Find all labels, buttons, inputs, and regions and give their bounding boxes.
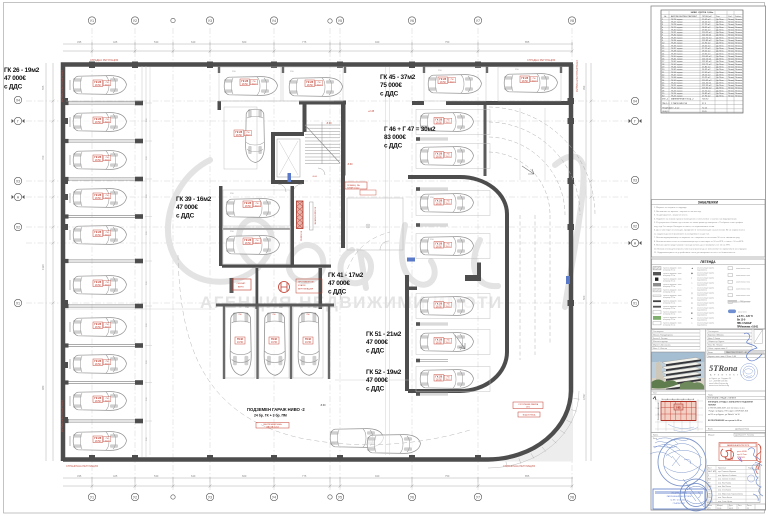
svg-text:ГК 26 - 19м2: ГК 26 - 19м2 [4, 67, 40, 74]
svg-text:Г 46 + Г 47 = 30м2: Г 46 + Г 47 = 30м2 [384, 126, 436, 133]
svg-text:2. Височините на вратите - ме: 2. Височините на вратите - мерени от чис… [654, 211, 702, 213]
svg-text:арх. В. Пеев: арх. В. Пеев [737, 454, 747, 456]
svg-text:ПРИемлива +18-81: ПРИемлива +18-81 [737, 327, 759, 329]
svg-text:под мазилка: под мазилка [697, 324, 707, 326]
svg-text:▲: ▲ [691, 267, 694, 270]
svg-text:ВОДООТВОД: ВОДООТВОД [523, 415, 536, 417]
svg-text:ПВЦ дограма: ПВЦ дограма [740, 301, 751, 303]
svg-text:3,597: 3,597 [582, 393, 586, 400]
svg-text:Петев: Петев [728, 96, 735, 98]
svg-text:ЕЛ.ТАБЛА: ЕЛ.ТАБЛА [300, 231, 303, 241]
svg-text:Лист: Лист [738, 505, 742, 507]
svg-text:Лист: Лист [653, 393, 657, 395]
svg-text:Х3: Х3 [16, 179, 20, 183]
svg-text:21: 21 [747, 508, 749, 510]
svg-text:арх. Пламена Маркова: арх. Пламена Маркова [718, 471, 736, 473]
svg-text:У8: У8 [570, 495, 574, 499]
svg-text:8. Всички външни стени на топ: 8. Всички външни стени на топлоизолация … [654, 241, 744, 243]
svg-text:РАБОТЕН ПРОЕКТ - АС: РАБОТЕН ПРОЕКТ - АС [726, 351, 748, 354]
svg-text:Петева: Петева [735, 96, 743, 98]
svg-text:СТРАНИЧНА РЕГУЛАЦИЯ: СТРАНИЧНА РЕГУЛАЦИЯ [575, 60, 579, 92]
svg-text:Чертеж: план ниво -2 Кота -5,: Чертеж: план ниво -2 Кота -5,60 [708, 356, 736, 358]
svg-text:17.92 м2: 17.92 м2 [702, 96, 711, 98]
svg-text:660: 660 [242, 40, 247, 44]
svg-text:осветително тяло: осветително тяло [736, 275, 750, 277]
svg-text:980: 980 [41, 385, 45, 390]
svg-text:Листа: Листа [747, 505, 752, 507]
svg-text:Обект: гаражи ниво -2: Обект: гаражи ниво -2 [708, 348, 727, 350]
svg-text:47 000€: 47 000€ [328, 280, 350, 287]
svg-text:Съгласувал: Съгласувал [653, 331, 663, 333]
svg-text:АВТОМОБИЛЕН ПАРКИНГ: АВТОМОБИЛЕН ПАРКИНГ [671, 15, 698, 18]
svg-text:ПОМЕЩ. ЗА: ПОМЕЩ. ЗА [347, 184, 360, 187]
svg-text:Възл.: Възл. [708, 428, 713, 430]
svg-text:ПУСО: ПУСО [708, 501, 713, 503]
svg-text:СТРАНИЧНА РЕГУЛАЦИЯ: СТРАНИЧНА РЕГУЛАЦИЯ [503, 464, 535, 468]
svg-text:интериор 25 см: интериор 25 см [663, 324, 676, 326]
svg-text:47 000€: 47 000€ [366, 377, 388, 384]
svg-text:Иван С. Иванов: Иван С. Иванов [653, 348, 667, 350]
svg-text:16.50: 16.50 [237, 341, 244, 344]
svg-text:16.50: 16.50 [271, 341, 278, 344]
svg-text:А Р Х И Т Е К Т С: А Р Х И Т Е К Т С [710, 374, 743, 377]
svg-text:интериор 25 см: интериор 25 см [663, 269, 676, 271]
svg-text:Инж.конструктор: Инж.конструктор [653, 341, 668, 343]
svg-text:ГК-55 гараж: ГК-55 гараж [671, 96, 683, 98]
svg-text:7. Всички водоприемници на па: 7. Всички водоприемници на паркинга са с… [654, 237, 741, 239]
svg-text:Иван Г. Колев: Иван Г. Колев [708, 338, 720, 340]
svg-text:У2: У2 [133, 495, 137, 499]
svg-text:У4: У4 [272, 495, 276, 499]
svg-text:ГАРАЖИ: ГАРАЖИ [708, 404, 716, 407]
svg-text:Зап.: Зап. [716, 16, 721, 18]
svg-text:Вп 15-0: Вп 15-0 [737, 320, 746, 322]
svg-text:940: 940 [375, 474, 380, 478]
svg-text:под мазилка: под мазилка [697, 289, 707, 291]
svg-text:М.Е.-2: М.Е.-2 [662, 99, 669, 101]
svg-text:осветително тяло: осветително тяло [736, 295, 750, 297]
svg-text:У7: У7 [476, 495, 480, 499]
svg-text:инж. Яна Рачева: инж. Яна Рачева [718, 482, 731, 484]
svg-text:72.15: 72.15 [702, 108, 708, 110]
svg-text:с ДДС: с ДДС [4, 83, 23, 90]
svg-text:ВЕНТ.: ВЕНТ. [238, 287, 245, 289]
svg-text:1320: 1320 [41, 264, 45, 270]
svg-text:Инж. Ив. Петров: Инж. Ив. Петров [708, 345, 722, 347]
svg-text:Мащаб: Мащаб [717, 505, 723, 507]
svg-text:04.21: 04.21 [729, 508, 733, 510]
svg-text:КАМАРА НА АРХИТЕКТИТЕ: КАМАРА НА АРХИТЕКТИТЕ [727, 444, 750, 447]
svg-text:Дата: Дата [729, 505, 733, 507]
svg-text:ЕЛ.ТАБЛО МИЕНЕ: ЕЛ.ТАБЛО МИЕНЕ [314, 207, 317, 225]
svg-text:У6: У6 [410, 19, 414, 23]
svg-text:1:100: 1:100 [717, 508, 721, 510]
svg-text:У4: У4 [272, 19, 276, 23]
svg-text:Г: Г [17, 119, 19, 123]
svg-text:750: 750 [445, 474, 450, 478]
svg-text:ПМ-1÷3: ПМ-1÷3 [662, 102, 670, 105]
svg-text:83 000€: 83 000€ [384, 134, 406, 141]
svg-text:СТРАНИЧНА РЕГУЛАЦИЯ: СТРАНИЧНА РЕГУЛАЦИЯ [66, 464, 98, 468]
svg-text:интериор 25 см: интериор 25 см [663, 308, 676, 310]
svg-text:Соб.: Соб. [728, 16, 733, 18]
svg-text:530: 530 [154, 40, 159, 44]
svg-text:Кольо К. Пенчев: Кольо К. Пенчев [653, 338, 667, 340]
svg-text:У3: У3 [208, 19, 212, 23]
svg-text:ОВК: ОВК [708, 486, 711, 488]
svg-text:интериор 25 см: интериор 25 см [663, 291, 676, 293]
svg-text:под, над 2-та метра Фасадите и: под, над 2-та метра Фасадите и навън, на… [654, 225, 715, 228]
svg-text:Г: Г [634, 119, 636, 123]
svg-text:У3: У3 [208, 495, 212, 499]
svg-text:www.strona-architects.bg: www.strona-architects.bg [709, 384, 729, 387]
svg-text:ГК 45 - 37м2: ГК 45 - 37м2 [380, 74, 416, 81]
svg-text:"Лазур", гр.Бургас, ПИ с идент: "Лазур", гр.Бургас, ПИ с идент. 07079.60… [708, 411, 748, 413]
svg-text:335: 335 [77, 474, 82, 478]
svg-text:Х2: Х2 [16, 225, 20, 229]
svg-text:7: 7 [738, 508, 739, 510]
svg-text:ЛЕГЕНДА: ЛЕГЕНДА [700, 260, 716, 264]
svg-text:24 бр. ГК + 3 бр. ПМ: 24 бр. ГК + 3 бр. ПМ [254, 414, 287, 418]
svg-text:ЕЛ: ЕЛ [708, 482, 710, 484]
svg-text:-5.60: -5.60 [320, 404, 326, 407]
svg-text:775: 775 [302, 40, 307, 44]
svg-text:ПРОТИВОПОЖ.: ПРОТИВОПОЖ. [298, 282, 315, 284]
svg-text:ЖИЛИЩНА СГРАДА С МАГАЗИНИ И ПО: ЖИЛИЩНА СГРАДА С МАГАЗИНИ И ПОДЗЕМНИ [708, 400, 754, 403]
svg-text:ОБЩО: ОБЩО [662, 111, 669, 113]
svg-text:СГРАДНА РЕГУЛАЦИЯ: СГРАДНА РЕГУЛАЦИЯ [527, 58, 555, 62]
svg-text:инж. Цветана Стойкова: инж. Цветана Стойкова [718, 474, 736, 477]
svg-text:Дв.Петк.: Дв.Петк. [716, 96, 725, 98]
svg-text:под мазилка: под мазилка [697, 319, 707, 321]
svg-text:Кирилов / Михова: Кирилов / Михова [708, 334, 725, 336]
svg-text:интериор 25 см: интериор 25 см [663, 302, 676, 304]
svg-text:Част: Част [708, 467, 712, 469]
svg-text:75 000€: 75 000€ [380, 82, 402, 89]
svg-text:НИВО -2 КОТА -5,60м: НИВО -2 КОТА -5,60м [691, 11, 714, 14]
svg-text:425: 425 [113, 474, 118, 478]
svg-text:2 ПАРКОМЕСТА: 2 ПАРКОМЕСТА [671, 102, 688, 105]
svg-text:под мазилка: под мазилка [697, 269, 707, 271]
svg-text:660: 660 [242, 474, 247, 478]
svg-text:с ДДС: с ДДС [366, 347, 385, 354]
svg-text:Х1: Х1 [16, 301, 20, 305]
svg-text:⌀ 0.70 – 120 °С: ⌀ 0.70 – 120 °С [737, 315, 753, 318]
svg-text:СТРАНИЧНА РЕГУЛАЦИЯ: СТРАНИЧНА РЕГУЛАЦИЯ [60, 400, 64, 432]
svg-text:осветително тяло: осветително тяло [736, 282, 750, 284]
svg-text:РАЗРЕШЕНИЕ ЗА СТРОЕЖ: РАЗРЕШЕНИЕ ЗА СТРОЕЖ [667, 495, 692, 498]
svg-text:осветително тяло: осветително тяло [736, 288, 750, 290]
svg-text:под мазилка: под мазилка [697, 274, 707, 276]
svg-text:с ДДС: с ДДС [380, 90, 399, 97]
svg-text:МАНЕВРЕНА ПЛОЩ -2: МАНЕВРЕНА ПЛОЩ -2 [671, 98, 694, 101]
svg-text:интериор 25 см: интериор 25 см [663, 319, 676, 321]
svg-text:ШАХТА 3.2м2: ШАХТА 3.2м2 [266, 426, 280, 429]
svg-text:-5.60: -5.60 [326, 122, 332, 125]
svg-text:СТРАНИЧНА РЕГУЛАЦИЯ: СТРАНИЧНА РЕГУЛАЦИЯ [60, 70, 64, 102]
svg-text:4. Подовете на всички гаражни: 4. Подовете на всички гаражни помещения … [654, 218, 737, 220]
svg-text:Х4: Х4 [16, 98, 20, 102]
svg-text:канал вент.: канал вент. [738, 312, 747, 314]
svg-text:У7: У7 [476, 19, 480, 23]
svg-text:У8: У8 [570, 19, 574, 23]
svg-text:ВиК: ВиК [708, 479, 711, 481]
svg-text:ГК 51 - 21м2: ГК 51 - 21м2 [366, 331, 402, 338]
svg-text:Мащаб: Мащаб [708, 435, 714, 437]
svg-text:Х1: Х1 [633, 301, 637, 305]
svg-text:393: 393 [582, 85, 586, 90]
svg-text:ЧАСТ АРХ: ЧАСТ АРХ [708, 470, 717, 473]
svg-text:47 000€: 47 000€ [176, 204, 198, 211]
svg-text:Съгласувал: Съгласувал [708, 331, 718, 333]
svg-text:3. За довършител - мерки от м: 3. За довършител - мерки от място. [654, 215, 688, 217]
svg-text:ПБЗ: ПБЗ [708, 497, 711, 499]
svg-text:1. Мерките на открито се подр: 1. Мерките на открито се подреди. [654, 207, 687, 209]
svg-text:855: 855 [525, 474, 530, 478]
svg-text:У2: У2 [133, 19, 137, 23]
svg-text:ОТОПЛЕНИЕ РАМПА: ОТОПЛЕНИЕ РАМПА [518, 403, 539, 406]
svg-text:940: 940 [375, 40, 380, 44]
svg-text:9. Всички скрити греди / рамк: 9. Всички скрити греди / рамки / носещи … [654, 245, 731, 247]
svg-text:Проектант: Проектант [718, 467, 726, 469]
svg-text:335: 335 [77, 40, 82, 44]
svg-text:-5.60: -5.60 [312, 176, 318, 178]
svg-text:530: 530 [154, 474, 159, 478]
svg-text:арх.Васил Пеев: арх.Васил Пеев [735, 428, 749, 430]
svg-text:интериор 25 см: интериор 25 см [663, 275, 676, 277]
svg-text:инж. Петко Бонев: инж. Петко Бонев [718, 497, 732, 499]
svg-text:К: К [708, 475, 709, 477]
svg-text:ГУМИ 6.5м2: ГУМИ 6.5м2 [347, 188, 360, 190]
svg-text:СМУКАТ.: СМУКАТ. [236, 282, 245, 285]
svg-text:640: 640 [191, 474, 196, 478]
svg-text:855: 855 [525, 40, 530, 44]
svg-text:У5: У5 [338, 19, 342, 23]
svg-text:СГРАДНА РЕГУЛАЦИЯ: СГРАДНА РЕГУЛАЦИЯ [90, 58, 118, 62]
svg-text:ВХ.РАЗРЕШЕНИЕ за строеж № 89 о: ВХ.РАЗРЕШЕНИЕ за строеж № 89 от [708, 419, 742, 422]
svg-text:↕: ↕ [691, 277, 692, 280]
svg-text:ПОДЗЕМЕН ГАРАЖ НИВО -2: ПОДЗЕМЕН ГАРАЖ НИВО -2 [247, 407, 305, 412]
svg-text:интериор 25 см: интериор 25 см [663, 280, 676, 282]
svg-text:500: 500 [582, 295, 586, 300]
svg-text:640: 640 [191, 40, 196, 44]
svg-text:+2.45: +2.45 [368, 110, 375, 113]
svg-text:Х3: Х3 [633, 178, 637, 182]
svg-text:11. Хидроизолацията на устройс: 11. Хидроизолацията на устройството стан… [654, 251, 736, 254]
svg-text:Фаза: Фаза [708, 504, 712, 507]
svg-text:-5.60: -5.60 [347, 163, 353, 166]
svg-text:5ТRona: 5ТRona [709, 363, 738, 373]
svg-text:под мазилка: под мазилка [697, 299, 707, 301]
svg-text:инж. Иво Петков: инж. Иво Петков [718, 486, 731, 488]
svg-text:осветително тяло: осветително тяло [736, 268, 750, 270]
svg-text:инж. Мирослава Харалампиева: инж. Мирослава Харалампиева [718, 493, 743, 495]
svg-text:555: 555 [41, 85, 45, 90]
svg-text:У5: У5 [338, 495, 342, 499]
svg-text:интериор 25 см: интериор 25 см [663, 297, 676, 299]
svg-text:ГК 52 - 19м2: ГК 52 - 19м2 [366, 369, 402, 376]
svg-text:инж. Стоян Ценов: инж. Стоян Ценов [718, 501, 732, 503]
svg-text:748.92: 748.92 [702, 99, 709, 101]
svg-text:под мазилка: под мазилка [697, 309, 707, 311]
svg-text:Иванка Т.Градинарова: Иванка Т.Градинарова [653, 334, 674, 336]
svg-text:425: 425 [113, 40, 118, 44]
svg-text:по КК на гр.Бургас, ул."Абоба": по КК на гр.Бургас, ул."Абоба" № 10 [708, 413, 740, 416]
svg-text:с ДДС: с ДДС [176, 212, 195, 219]
svg-text:16.50: 16.50 [305, 341, 312, 344]
svg-text:У6: У6 [410, 495, 414, 499]
svg-text:под мазилка: под мазилка [697, 304, 707, 306]
svg-text:Мария С.Атанасова: Мария С.Атанасова [653, 344, 671, 347]
svg-text:на наружни данни в практиките: на наружни данни в практиките за осигуря… [654, 233, 710, 235]
svg-text:5. В сутерените в близост до: 5. В сутерените в близост до стените на … [654, 221, 744, 224]
svg-text:с ДДС: с ДДС [366, 385, 385, 392]
svg-text:интериор 25 см: интериор 25 см [663, 313, 676, 315]
svg-text:под мазилка: под мазилка [697, 279, 707, 281]
svg-text:ПЛОЩ м2: ПЛОЩ м2 [702, 16, 712, 18]
svg-text:в УПИ VII-1036,1037, кв.4 по п: в УПИ VII-1036,1037, кв.4 по плана на ж.… [708, 408, 745, 410]
svg-text:700: 700 [41, 155, 45, 160]
svg-text:У1: У1 [90, 495, 94, 499]
svg-text:775: 775 [302, 474, 307, 478]
svg-text:ЖИЛИЩНА СГРАДА С ГАРАЖИ: ЖИЛИЩНА СГРАДА С ГАРАЖИ [708, 397, 737, 400]
svg-text:ПОДХОДЪТ -2 м2: ПОДХОДЪТ -2 м2 [662, 108, 680, 110]
svg-text:рег.№ 03569: рег.№ 03569 [737, 450, 747, 453]
svg-text:Х4: Х4 [633, 99, 637, 103]
svg-text:10. Всички огнезащитни врати и: 10. Всички огнезащитни врати и монтажни … [654, 248, 747, 250]
svg-text:с ДДС: с ДДС [328, 288, 347, 295]
svg-text:под мазилка: под мазилка [697, 284, 707, 286]
svg-text:ЗАБЕЛЕЖКИ: ЗАБЕЛЕЖКИ [698, 200, 719, 204]
svg-text:ГЛ.АРХИТЕКТ: ГЛ.АРХИТЕКТ [673, 502, 686, 505]
svg-text:47 000€: 47 000€ [4, 75, 26, 82]
svg-text:под мазилка: под мазилка [697, 294, 707, 296]
svg-text:КЛАПИ: КЛАПИ [298, 284, 306, 287]
svg-text:Х2: Х2 [633, 224, 637, 228]
svg-text:инж. Стен Колев: инж. Стен Колев [718, 490, 731, 492]
svg-text:ГК 39 - 16м2: ГК 39 - 16м2 [176, 196, 212, 203]
svg-text:47 000€: 47 000€ [366, 339, 388, 346]
svg-text:16%: 16% [526, 407, 530, 409]
svg-text:Община гр. Бургас: Община гр. Бургас [708, 341, 724, 343]
svg-text:ВЕНТИЛАЦИЯ: ВЕНТИЛАЦИЯ [298, 287, 313, 290]
svg-text:с ДДС: с ДДС [384, 142, 403, 149]
svg-text:У1: У1 [90, 19, 94, 23]
svg-text:750: 750 [445, 40, 450, 44]
svg-text:интериор 25 см: интериор 25 см [663, 286, 676, 288]
svg-text:инж. Светлин Стойчев: инж. Светлин Стойчев [718, 478, 736, 481]
svg-text:под мазилка: под мазилка [697, 314, 707, 316]
svg-text:6. Да се монтират инсталации,: 6. Да се монтират инсталации, профилите … [654, 229, 746, 232]
svg-text:ГК 41 - 17м2: ГК 41 - 17м2 [328, 272, 364, 279]
svg-text:Забел.: Забел. [735, 16, 742, 18]
svg-text:Фаза:: Фаза: [708, 351, 713, 354]
